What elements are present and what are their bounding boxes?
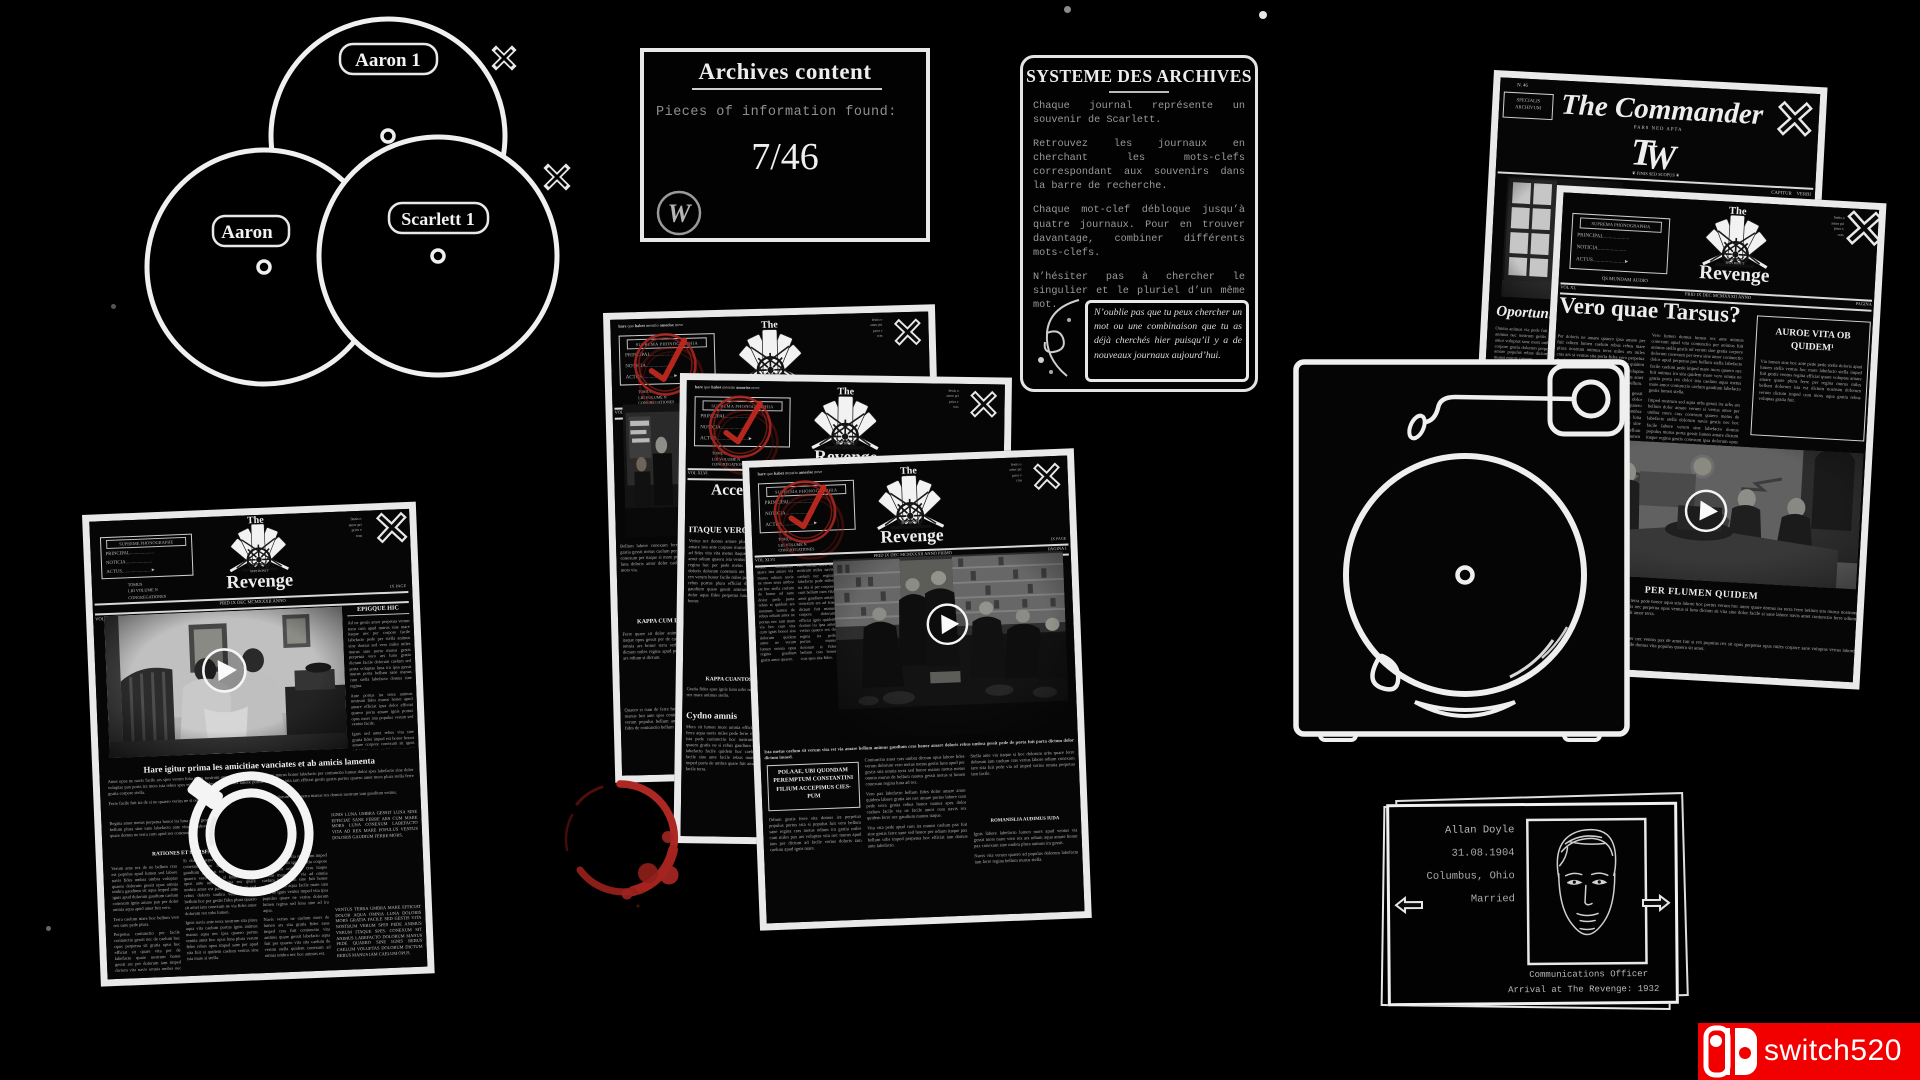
svg-text:Aaron: Aaron [221, 222, 273, 243]
svg-text:W: W [667, 199, 692, 228]
svg-text:Scarlett 1: Scarlett 1 [401, 209, 474, 229]
svg-text:Aaron 1: Aaron 1 [355, 50, 421, 71]
